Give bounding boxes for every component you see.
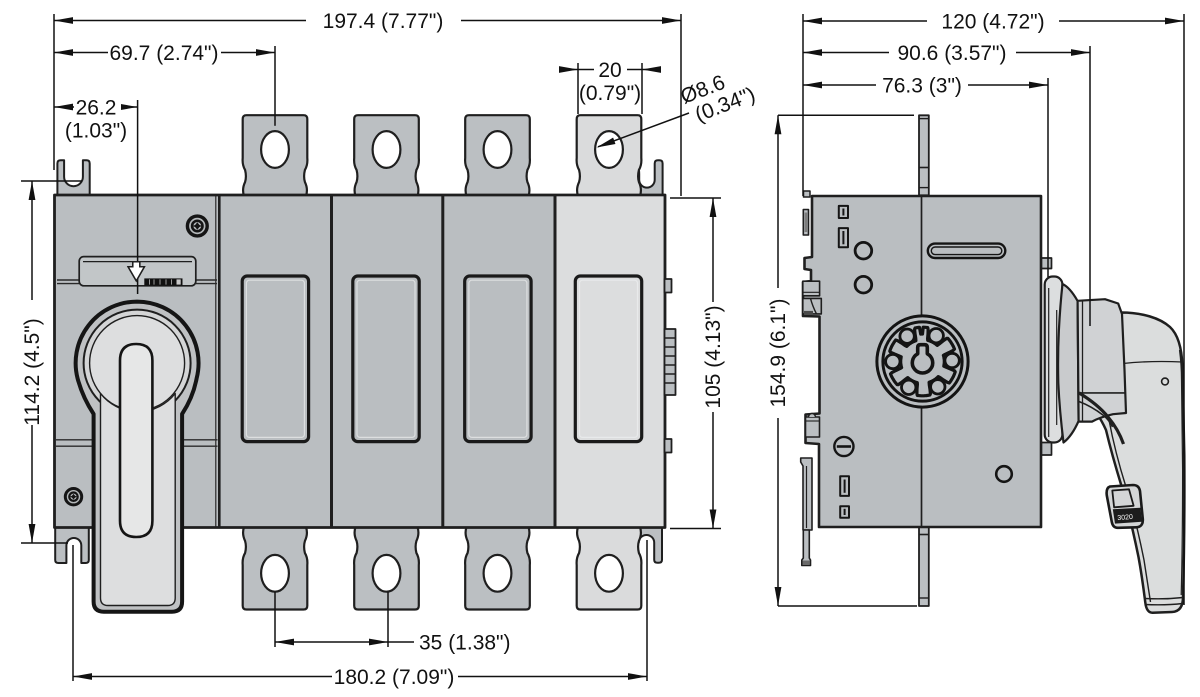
svg-text:(0.79"): (0.79"): [579, 82, 641, 105]
svg-text:105 (4.13"): 105 (4.13"): [702, 305, 725, 408]
svg-text:35 (1.38"): 35 (1.38"): [419, 632, 511, 655]
svg-text:180.2 (7.09"): 180.2 (7.09"): [334, 666, 455, 689]
svg-text:154.9 (6.1"): 154.9 (6.1"): [767, 298, 790, 407]
svg-text:114.2 (4.5"): 114.2 (4.5"): [21, 318, 44, 425]
svg-text:76.3 (3"): 76.3 (3"): [882, 75, 962, 98]
svg-text:20: 20: [598, 59, 621, 82]
svg-text:26.2: 26.2: [76, 97, 117, 120]
svg-text:120 (4.72"): 120 (4.72"): [941, 11, 1044, 34]
svg-text:69.7 (2.74"): 69.7 (2.74"): [109, 42, 218, 65]
svg-text:90.6 (3.57"): 90.6 (3.57"): [897, 42, 1006, 65]
svg-text:(1.03"): (1.03"): [65, 120, 127, 143]
svg-text:197.4 (7.77"): 197.4 (7.77"): [323, 10, 444, 33]
svg-text:3020: 3020: [1117, 514, 1133, 522]
